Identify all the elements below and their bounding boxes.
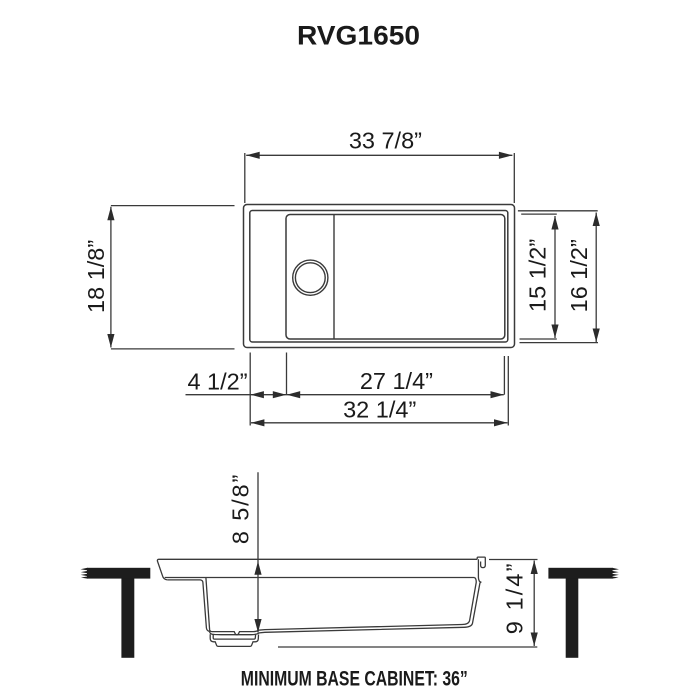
svg-text:16 1/2”: 16 1/2”: [566, 239, 592, 312]
svg-text:8 5/8”: 8 5/8”: [227, 475, 253, 545]
svg-text:32 1/4”: 32 1/4”: [343, 397, 416, 423]
svg-text:MINIMUM BASE CABINET: 36”: MINIMUM BASE CABINET: 36”: [241, 668, 468, 691]
svg-text:15 1/2”: 15 1/2”: [525, 239, 551, 312]
svg-text:9 1/4”: 9 1/4”: [502, 564, 528, 635]
svg-text:4 1/2”: 4 1/2”: [187, 368, 247, 394]
svg-text:27 1/4”: 27 1/4”: [360, 368, 433, 394]
svg-text:RVG1650: RVG1650: [297, 21, 420, 51]
svg-text:18 1/8”: 18 1/8”: [83, 240, 109, 313]
svg-text:33 7/8”: 33 7/8”: [349, 127, 422, 153]
